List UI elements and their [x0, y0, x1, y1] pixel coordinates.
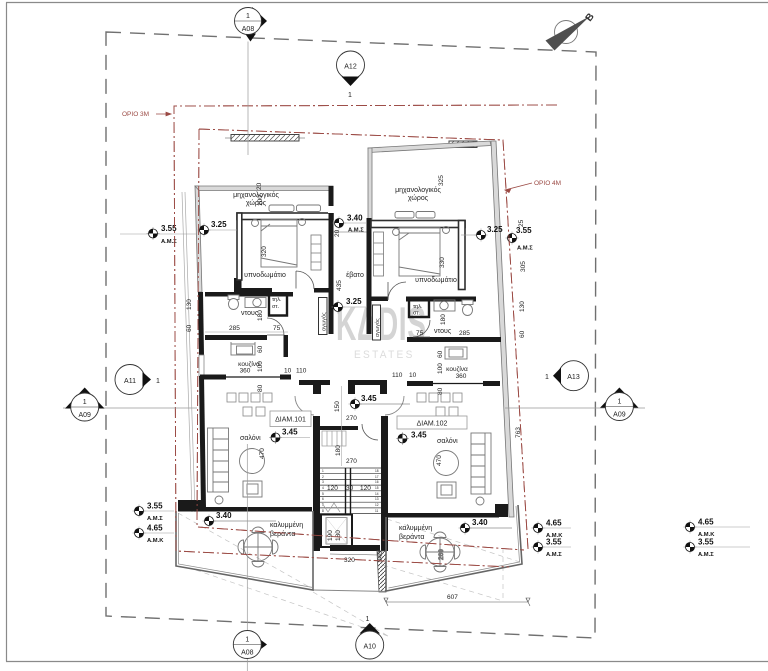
svg-text:8: 8 [322, 509, 324, 513]
svg-text:A09: A09 [78, 412, 91, 419]
svg-text:11: 11 [375, 509, 379, 513]
svg-text:100: 100 [437, 363, 444, 374]
svg-text:1: 1 [545, 374, 549, 381]
svg-text:A08: A08 [242, 26, 255, 33]
svg-text:3: 3 [322, 480, 324, 484]
svg-text:180: 180 [440, 314, 447, 325]
svg-text:30: 30 [346, 485, 354, 492]
svg-text:3.25: 3.25 [487, 225, 503, 234]
svg-text:120: 120 [327, 485, 338, 492]
svg-text:3.40: 3.40 [347, 214, 363, 223]
svg-text:σαλόνι: σαλόνι [437, 437, 458, 445]
svg-text:60: 60 [257, 345, 264, 353]
svg-text:A10: A10 [363, 644, 376, 651]
svg-text:τηλ.: τηλ. [413, 304, 423, 310]
svg-text:16: 16 [375, 480, 379, 484]
svg-text:13: 13 [375, 497, 379, 501]
svg-text:60: 60 [186, 324, 193, 332]
svg-text:100: 100 [257, 361, 264, 372]
svg-text:A08: A08 [241, 650, 254, 657]
svg-text:470: 470 [436, 455, 443, 466]
svg-text:3.25: 3.25 [211, 220, 227, 229]
svg-text:190: 190 [327, 530, 334, 541]
svg-text:20: 20 [334, 229, 341, 237]
svg-text:1: 1 [617, 399, 621, 406]
svg-text:2: 2 [322, 475, 324, 479]
svg-text:αγωγός: αγωγός [374, 318, 381, 337]
svg-text:3.55: 3.55 [698, 538, 714, 547]
svg-text:ESTATES: ESTATES [354, 349, 415, 361]
svg-text:180: 180 [335, 530, 342, 541]
svg-text:270: 270 [346, 415, 357, 422]
svg-text:285: 285 [459, 330, 470, 337]
svg-text:σαλόνι: σαλόνι [240, 434, 261, 442]
svg-text:180: 180 [335, 445, 342, 456]
svg-text:στ.: στ. [413, 311, 421, 317]
svg-text:ΔΙΑΜ.102: ΔΙΑΜ.102 [417, 421, 448, 428]
svg-text:17: 17 [375, 475, 379, 479]
svg-text:14: 14 [375, 492, 379, 496]
svg-text:330: 330 [439, 257, 446, 268]
svg-text:3.25: 3.25 [346, 297, 362, 306]
svg-text:130: 130 [186, 299, 193, 310]
svg-text:1: 1 [245, 637, 249, 644]
svg-text:3.55: 3.55 [546, 538, 562, 547]
svg-text:3.45: 3.45 [411, 431, 427, 440]
svg-text:1: 1 [83, 399, 87, 406]
svg-text:4.65: 4.65 [147, 524, 163, 533]
svg-text:1: 1 [366, 616, 370, 623]
svg-text:4.65: 4.65 [546, 519, 562, 528]
svg-text:υπνοδωμάτιο: υπνοδωμάτιο [415, 276, 457, 284]
svg-text:χώρος: χώρος [408, 194, 429, 202]
svg-text:75: 75 [416, 330, 424, 337]
svg-text:καλυμμένη: καλυμμένη [270, 521, 303, 529]
svg-text:Α.Μ.Σ: Α.Μ.Σ [517, 246, 533, 252]
svg-text:470: 470 [259, 448, 266, 459]
svg-text:υπνοδωμάτιο: υπνοδωμάτιο [244, 271, 286, 279]
svg-text:12: 12 [375, 503, 379, 507]
svg-text:στ.: στ. [272, 304, 280, 310]
svg-text:80: 80 [257, 384, 264, 392]
svg-text:1: 1 [348, 92, 352, 99]
svg-text:ΟΡΙΟ 3Μ: ΟΡΙΟ 3Μ [122, 111, 149, 118]
svg-text:110: 110 [392, 372, 403, 379]
svg-text:269: 269 [438, 549, 445, 560]
svg-text:15: 15 [375, 486, 379, 490]
svg-text:25: 25 [518, 219, 525, 227]
svg-text:A13: A13 [567, 374, 580, 381]
svg-text:270: 270 [346, 458, 357, 465]
svg-text:325: 325 [438, 175, 445, 186]
svg-text:5: 5 [322, 492, 324, 496]
svg-text:6: 6 [322, 497, 324, 501]
svg-text:320: 320 [344, 557, 355, 564]
svg-text:βεράντα: βεράντα [399, 533, 424, 541]
svg-text:Α.Μ.Σ: Α.Μ.Σ [698, 552, 714, 558]
svg-text:4: 4 [322, 486, 324, 490]
svg-text:βεράντα: βεράντα [270, 530, 295, 538]
svg-text:320: 320 [261, 246, 268, 257]
svg-text:κουζίνα: κουζίνα [446, 365, 468, 373]
svg-text:ΔΙΑΜ.101: ΔΙΑΜ.101 [275, 417, 306, 424]
svg-text:285: 285 [229, 325, 240, 332]
svg-text:έβατο: έβατο [346, 271, 364, 279]
svg-text:Α.Μ.Κ: Α.Μ.Κ [147, 538, 164, 544]
svg-text:4.65: 4.65 [698, 518, 714, 527]
svg-text:Α.Μ.Σ: Α.Μ.Σ [348, 228, 364, 234]
svg-text:100: 100 [257, 195, 264, 206]
svg-text:60: 60 [437, 350, 444, 358]
svg-text:607: 607 [447, 594, 458, 601]
svg-text:μηχανολογικός: μηχανολογικός [395, 186, 441, 194]
svg-text:60: 60 [519, 330, 526, 338]
svg-text:110: 110 [296, 368, 307, 375]
svg-text:180: 180 [257, 310, 264, 321]
svg-text:305: 305 [520, 261, 527, 272]
svg-text:120: 120 [360, 485, 371, 492]
svg-text:ντους: ντους [434, 328, 452, 335]
svg-text:3.40: 3.40 [216, 511, 232, 520]
svg-text:3.45: 3.45 [361, 394, 377, 403]
svg-text:3.45: 3.45 [282, 428, 298, 437]
svg-text:10: 10 [409, 372, 417, 379]
svg-text:ΟΡΙΟ 4Μ: ΟΡΙΟ 4Μ [534, 180, 561, 187]
svg-text:130: 130 [519, 301, 526, 312]
svg-text:Α.Μ.Σ: Α.Μ.Σ [147, 516, 163, 522]
svg-text:1: 1 [322, 469, 324, 473]
svg-text:20: 20 [256, 182, 263, 190]
svg-text:75: 75 [273, 325, 281, 332]
svg-text:360: 360 [240, 368, 251, 375]
svg-text:18: 18 [375, 469, 379, 473]
svg-text:150: 150 [334, 401, 341, 412]
svg-text:10: 10 [284, 368, 292, 375]
svg-text:A09: A09 [613, 412, 626, 419]
svg-text:αγωγός: αγωγός [321, 312, 328, 331]
svg-text:A12: A12 [344, 64, 357, 71]
svg-text:1: 1 [246, 13, 250, 20]
svg-text:1: 1 [156, 378, 160, 385]
svg-text:3.40: 3.40 [472, 518, 488, 527]
svg-text:3.55: 3.55 [147, 502, 163, 511]
svg-text:τηλ.: τηλ. [272, 297, 282, 303]
svg-text:A11: A11 [124, 378, 136, 385]
svg-text:Α.Μ.Σ: Α.Μ.Σ [546, 552, 562, 558]
svg-text:καλυμμένη: καλυμμένη [399, 524, 432, 532]
svg-text:435: 435 [336, 280, 343, 291]
svg-text:360: 360 [456, 373, 467, 380]
